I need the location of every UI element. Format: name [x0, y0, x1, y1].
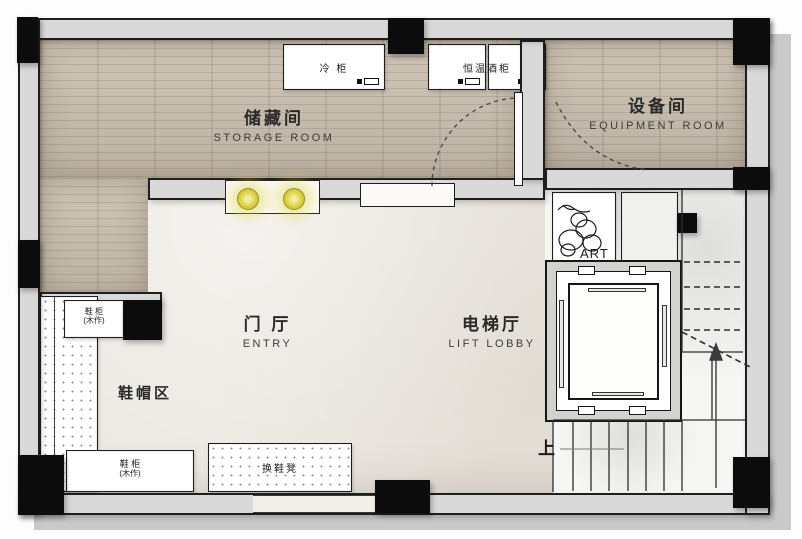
- storage-room-floor-wing: [40, 178, 148, 300]
- door-leaf: [514, 92, 523, 186]
- column: [123, 300, 162, 340]
- shoe-bench: 换鞋凳: [208, 443, 352, 492]
- shoe-cabinet-lower-label: 鞋 柜: [67, 459, 193, 469]
- stairs-up-label: 上: [538, 434, 555, 459]
- elevator-door-notch: [629, 406, 646, 415]
- wall-storage-south: [148, 178, 545, 200]
- column: [18, 240, 40, 288]
- column: [388, 18, 424, 54]
- outer-wall-face-bottom: [34, 515, 791, 530]
- shoe-cabinet-lower-note: (木作): [67, 469, 193, 478]
- elevator-rail: [588, 288, 646, 292]
- art-label: ART: [580, 246, 609, 261]
- elevator-door-notch: [578, 266, 595, 275]
- column: [733, 167, 770, 190]
- elevator-door-notch: [578, 406, 595, 415]
- shoe-cabinet-lower: 鞋 柜 (木作): [66, 450, 194, 492]
- cold-cabinet-label: 冷 柜: [283, 60, 385, 75]
- column: [375, 480, 430, 513]
- column: [677, 213, 697, 233]
- elevator-rail: [592, 392, 644, 396]
- cabinet-handle-icon: [364, 78, 379, 85]
- shoe-cabinet-upper-note: (木作): [65, 316, 123, 325]
- shoe-cabinet-upper: 鞋 柜 (木作): [64, 300, 124, 338]
- elevator-rail: [559, 300, 564, 388]
- shoe-bench-label: 换鞋凳: [262, 460, 298, 475]
- column: [18, 455, 64, 515]
- floor-plan: 冷 柜 恒温酒柜 ART 鞋 柜 (木作) 鞋 柜 (木作) 换鞋凳: [0, 0, 802, 539]
- wall-storage-equipment: [520, 40, 545, 180]
- ceiling-light-icon: [237, 188, 259, 210]
- wall-equipment-south: [545, 168, 745, 190]
- column: [17, 17, 38, 63]
- elevator-cab: [568, 283, 659, 400]
- equipment-room-floor: [545, 40, 745, 170]
- column: [733, 18, 770, 65]
- cabinet-handle-icon: [465, 78, 480, 85]
- column: [733, 457, 770, 508]
- ceiling-light-icon: [283, 188, 305, 210]
- side-panel: [621, 192, 678, 262]
- wall-east: [745, 18, 770, 515]
- console-cabinet: [360, 183, 455, 207]
- south-wall-opening: [253, 495, 377, 513]
- elevator-rail: [662, 305, 667, 367]
- stair-lower-run-floor: [553, 420, 745, 493]
- shoe-cabinet-upper-label: 鞋 柜: [65, 307, 123, 316]
- elevator-door-notch: [629, 266, 646, 275]
- outer-wall-face-right: [770, 34, 791, 520]
